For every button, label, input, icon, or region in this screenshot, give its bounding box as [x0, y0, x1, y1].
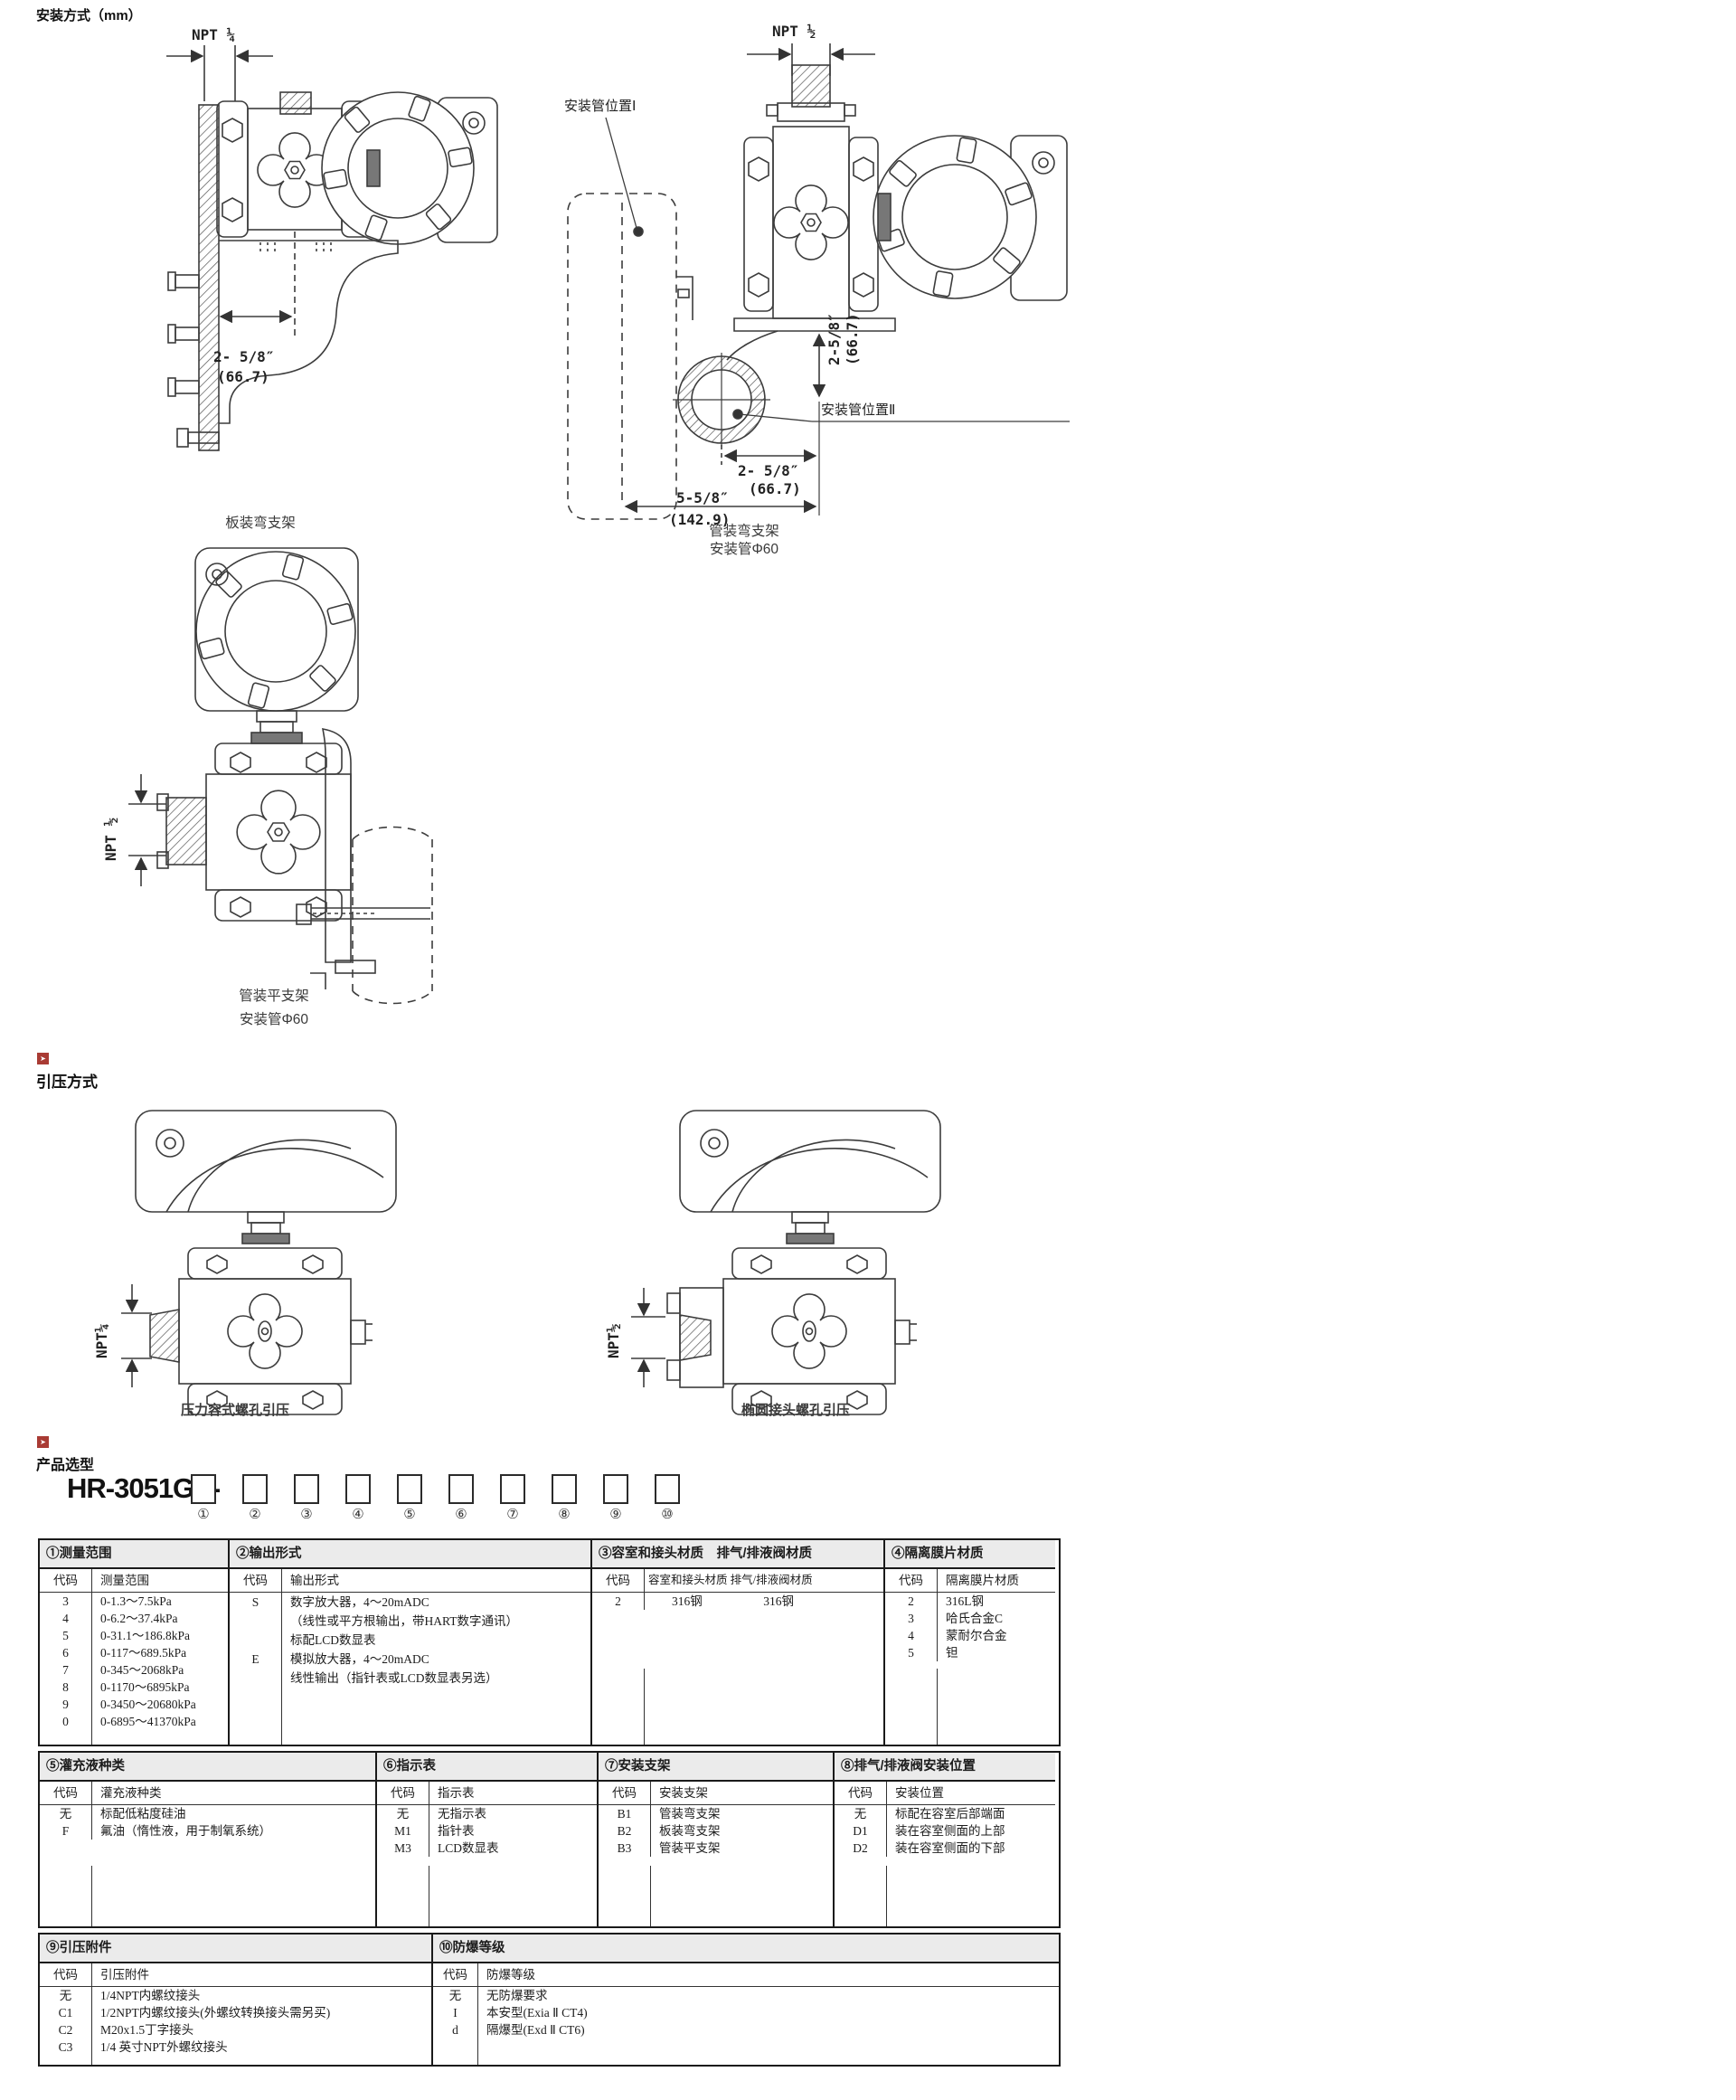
table-row: （线性或平方根输出，带HART数字通讯）	[230, 1612, 590, 1631]
panel-bracket-caption: 板装弯支架	[225, 515, 296, 531]
table-row: 线性输出（指针表或LCD数显表另选）	[230, 1669, 590, 1688]
pipe-flat-bracket-caption: 管装平支架	[239, 988, 309, 1004]
model-code-position: ③	[295, 1474, 318, 1522]
section-title-selection: 产品选型	[36, 1452, 94, 1474]
pipe-flat-bracket-diagram: NPT ½ 管装平支架 安装管Φ60	[80, 537, 586, 1036]
table-row: M3LCD数显表	[377, 1840, 597, 1857]
code-box	[242, 1474, 268, 1504]
table-row: 无标配在容室后部端面	[835, 1805, 1055, 1822]
table-explosion-proof: ⑩防爆等级 代码防爆等级 无无防爆要求I本安型(Exia Ⅱ CT4)d隔爆型(…	[431, 1934, 1059, 2065]
table-diaphragm-material: ④隔离膜片材质 代码隔离膜片材质 2316L钢3哈氏合金C4蒙耐尔合金5钽	[883, 1540, 1055, 1745]
table-row: 4蒙耐尔合金	[885, 1627, 1055, 1644]
wall-bolts	[168, 272, 199, 396]
tapping-right-diagram: NPT½	[579, 1087, 986, 1424]
table-row: D2装在容室侧面的下部	[835, 1840, 1055, 1857]
code-box	[500, 1474, 525, 1504]
npt-half-label: NPT½	[605, 1323, 622, 1358]
table-row: C11/2NPT内螺纹接头(外螺纹转换接头需另买)	[40, 2004, 431, 2021]
table-row: 80-1170～6895kPa	[40, 1679, 228, 1696]
pipe-position-2-label: 安装管位置Ⅱ	[821, 402, 895, 418]
position-number: ⑩	[661, 1508, 673, 1522]
table-row: B2板装弯支架	[599, 1822, 833, 1840]
table-title: ⑥指示表	[377, 1753, 597, 1782]
table-title: ⑩防爆等级	[433, 1934, 1059, 1963]
table-row: 30-1.3～7.5kPa	[40, 1593, 228, 1610]
model-code-position: ④	[346, 1474, 370, 1522]
table-row: 40-6.2～37.4kPa	[40, 1610, 228, 1627]
tapping-left-diagram: NPT¼	[80, 1087, 441, 1424]
table-row: 50-31.1～186.8kPa	[40, 1627, 228, 1644]
code-box	[552, 1474, 577, 1504]
table-row: 2316L钢	[885, 1593, 1055, 1610]
table-title: ⑨引压附件	[40, 1934, 431, 1963]
position-number: ⑥	[455, 1508, 467, 1522]
table-measuring-range: ①测量范围 代码测量范围 30-1.3～7.5kPa40-6.2～37.4kPa…	[40, 1540, 228, 1745]
table-row: M1指针表	[377, 1822, 597, 1840]
model-code-position: ②	[243, 1474, 267, 1522]
dim-h2: 5-5/8″	[676, 489, 729, 506]
table-row: 无1/4NPT内螺纹接头	[40, 1987, 431, 2004]
svg-text:(66.7): (66.7)	[844, 313, 861, 365]
svg-text:安装管Φ60: 安装管Φ60	[710, 541, 778, 557]
model-code-position: ⑦	[501, 1474, 524, 1522]
table-row: 70-345～2068kPa	[40, 1661, 228, 1679]
model-code-position: ①	[192, 1474, 215, 1522]
svg-text:(66.7): (66.7)	[217, 368, 269, 385]
table-row: 标配LCD数显表	[230, 1631, 590, 1650]
table-row: 60-117～689.5kPa	[40, 1644, 228, 1661]
table-title: ④隔离膜片材质	[885, 1540, 1055, 1569]
table-row: F氟油（惰性液，用于制氧系统）	[40, 1822, 375, 1840]
table-row: 无标配低粘度硅油	[40, 1805, 375, 1822]
table-row: 00-6895～41370kPa	[40, 1713, 228, 1730]
table-row: 无无防爆要求	[433, 1987, 1059, 2004]
code-box	[191, 1474, 216, 1504]
table-row: 无无指示表	[377, 1805, 597, 1822]
table-row: D1装在容室侧面的上部	[835, 1822, 1055, 1840]
svg-text:(66.7): (66.7)	[749, 480, 801, 497]
table-row: B1管装弯支架	[599, 1805, 833, 1822]
dim-h1: 2- 5/8″	[738, 462, 798, 479]
selection-tables: ①测量范围 代码测量范围 30-1.3～7.5kPa40-6.2～37.4kPa…	[38, 1538, 1061, 2067]
model-code-position: ⑤	[398, 1474, 421, 1522]
table-title: ⑧排气/排液阀安装位置	[835, 1753, 1055, 1782]
svg-text:安装管Φ60: 安装管Φ60	[240, 1011, 308, 1027]
code-box	[655, 1474, 680, 1504]
code-box	[345, 1474, 371, 1504]
model-code-position: ⑨	[604, 1474, 627, 1522]
table-row: S数字放大器，4～20mADC	[230, 1593, 590, 1612]
table-vent-drain-position: ⑧排气/排液阀安装位置 代码安装位置 无标配在容室后部端面D1装在容室侧面的上部…	[833, 1753, 1055, 1926]
model-code-position: ⑥	[449, 1474, 473, 1522]
position-number: ⑧	[558, 1508, 570, 1522]
code-box	[603, 1474, 628, 1504]
table-chamber-material: ③容室和接头材质 排气/排液阀材质 代码容室和接头材质 排气/排液阀材质 231…	[590, 1540, 883, 1745]
model-code-position: ⑩	[656, 1474, 679, 1522]
quatrefoil	[772, 1294, 846, 1368]
table-band-3: ⑨引压附件 代码引压附件 无1/4NPT内螺纹接头C11/2NPT内螺纹接头(外…	[38, 1933, 1061, 2067]
table-title: ②输出形式	[230, 1540, 590, 1569]
model-code-position: ⑧	[552, 1474, 576, 1522]
npt-quarter-label: NPT ¼	[192, 26, 235, 43]
table-row: d隔爆型(Exd Ⅱ CT6)	[433, 2021, 1059, 2039]
npt-half-label: NPT ½	[772, 23, 816, 40]
table-output-form: ②输出形式 代码输出形式 S数字放大器，4～20mADC（线性或平方根输出，带H…	[228, 1540, 590, 1745]
datasheet-page: 安装方式（mm） ➤ 引压方式 ➤ 产品选型	[0, 0, 1736, 2100]
table-indicator: ⑥指示表 代码指示表 无无指示表M1指针表M3LCD数显表	[375, 1753, 597, 1926]
position-number: ①	[197, 1508, 209, 1522]
model-code-boxes: ① ② ③ ④ ⑤ ⑥ ⑦ ⑧ ⑨ ⑩	[192, 1474, 679, 1522]
red-arrow-icon: ➤	[37, 1436, 49, 1448]
table-tapping-accessory: ⑨引压附件 代码引压附件 无1/4NPT内螺纹接头C11/2NPT内螺纹接头(外…	[40, 1934, 431, 2065]
table-row: C31/4 英寸NPT外螺纹接头	[40, 2039, 431, 2056]
tapping-left-caption: 压力容式螺孔引压	[181, 1400, 289, 1419]
quatrefoil	[258, 133, 332, 207]
position-number: ⑤	[403, 1508, 415, 1522]
table-title: ①测量范围	[40, 1540, 228, 1569]
table-band-1: ①测量范围 代码测量范围 30-1.3～7.5kPa40-6.2～37.4kPa…	[38, 1538, 1061, 1746]
position-number: ③	[300, 1508, 312, 1522]
table-row: 90-3450～20680kPa	[40, 1696, 228, 1713]
table-row: I本安型(Exia Ⅱ CT4)	[433, 2004, 1059, 2021]
pipe-position-1-label: 安装管位置Ⅰ	[564, 99, 636, 114]
table-title: ⑤灌充液种类	[40, 1753, 375, 1782]
table-title: ⑦安装支架	[599, 1753, 833, 1782]
panel-bracket-diagram: NPT ¼ 2- 5/8″ (66.7) 板装弯支架	[80, 14, 514, 534]
code-box	[294, 1474, 319, 1504]
npt-quarter-label: NPT¼	[93, 1323, 110, 1358]
quatrefoil	[228, 1294, 302, 1368]
table-row: 5钽	[885, 1644, 1055, 1661]
table-row: 2316钢 316钢	[592, 1593, 883, 1610]
pipe-bent-bracket-diagram: NPT ½ 安装管位置Ⅰ 安装管位置Ⅱ 2-5/8″ (66.7) 2- 5/8…	[541, 13, 1070, 555]
position-number: ⑨	[609, 1508, 621, 1522]
position-number: ⑦	[506, 1508, 518, 1522]
position-number: ②	[249, 1508, 260, 1522]
table-title: ③容室和接头材质 排气/排液阀材质	[592, 1540, 883, 1569]
npt-half-label: NPT ½	[102, 818, 119, 861]
red-arrow-icon: ➤	[37, 1053, 49, 1064]
table-row: 3哈氏合金C	[885, 1610, 1055, 1627]
quatrefoil	[237, 790, 320, 874]
dim-66-7: 2- 5/8″	[213, 348, 274, 365]
tapping-right-caption: 椭圆接头螺孔引压	[741, 1400, 850, 1419]
table-row: E模拟放大器，4～20mADC	[230, 1650, 590, 1669]
table-row: C2M20x1.5丁字接头	[40, 2021, 431, 2039]
dim-vertical: 2-5/8″	[826, 313, 843, 365]
code-box	[448, 1474, 474, 1504]
code-box	[397, 1474, 422, 1504]
table-mounting-bracket: ⑦安装支架 代码安装支架 B1管装弯支架B2板装弯支架B3管装平支架	[597, 1753, 833, 1926]
pipe-bent-bracket-caption: 管装弯支架	[709, 523, 779, 539]
table-fill-fluid: ⑤灌充液种类 代码灌充液种类 无标配低粘度硅油F氟油（惰性液，用于制氧系统）	[40, 1753, 375, 1926]
position-number: ④	[352, 1508, 363, 1522]
table-band-2: ⑤灌充液种类 代码灌充液种类 无标配低粘度硅油F氟油（惰性液，用于制氧系统） ⑥…	[38, 1751, 1061, 1928]
table-row: B3管装平支架	[599, 1840, 833, 1857]
quatrefoil	[774, 185, 848, 260]
